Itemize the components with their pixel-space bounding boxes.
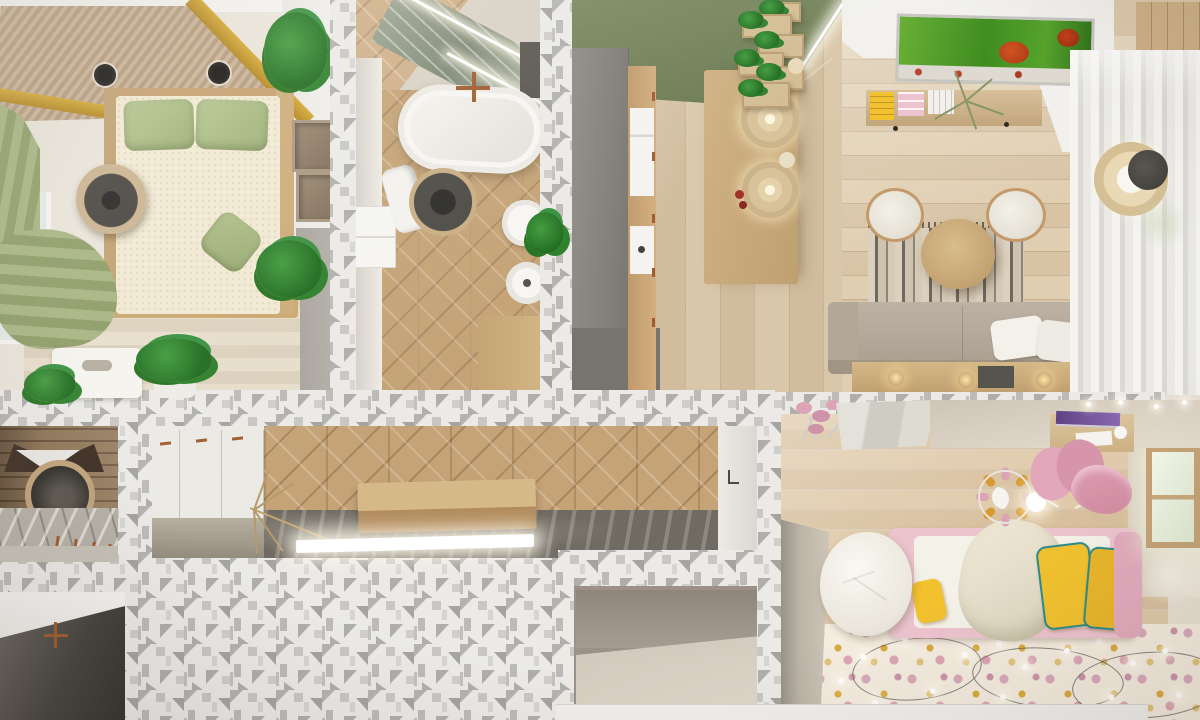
utility-faucet (54, 622, 57, 648)
room-kids (0, 0, 1200, 720)
sofa-backrest (828, 360, 1102, 374)
throw-pillow (197, 208, 266, 277)
desk-lamp (1114, 426, 1127, 439)
window-light (1140, 548, 1200, 604)
cube-shelf (292, 120, 344, 172)
bathroom-base (348, 0, 548, 400)
string-light-bulb (838, 678, 844, 684)
plant-shelf (763, 2, 801, 22)
bathtub (396, 82, 548, 176)
room-corridor (0, 0, 1200, 720)
lighting-vignette (0, 0, 1200, 720)
duvet (950, 512, 1078, 651)
red-bowl (739, 201, 747, 209)
sofa-seam (962, 306, 963, 360)
string-light-bulb (996, 640, 1002, 646)
ceiling-spotlight (1075, 106, 1080, 111)
copper-handle (196, 438, 207, 442)
green-accent-wall (558, 0, 848, 108)
string-light-wire (970, 641, 1127, 714)
plant (136, 338, 212, 382)
low-cabinet (564, 328, 660, 398)
plant (256, 240, 322, 298)
plant-shelf (758, 34, 804, 58)
copper-handle (652, 214, 655, 223)
console-item (978, 366, 1014, 388)
white-books (928, 90, 954, 114)
ceiling-soffit (1028, 0, 1114, 152)
pouf (866, 188, 924, 242)
wardrobe-top (836, 400, 938, 450)
plant-shelf (742, 82, 790, 108)
plant (738, 79, 764, 97)
green-marble-strip (371, 0, 541, 114)
tall-cabinet-column (564, 48, 629, 340)
round-rug (409, 168, 477, 236)
bedroom-slat-ceiling (0, 6, 324, 122)
pouf (986, 188, 1046, 242)
green-curtain-fold (0, 222, 122, 354)
green-pillow (195, 99, 269, 151)
bedroom-right-wall (282, 0, 348, 400)
coffee-table (921, 219, 995, 289)
ceiling-soffit (842, 0, 1110, 58)
wing-decor (4, 444, 104, 472)
green-pillow (123, 99, 195, 151)
sink-drain (523, 279, 531, 287)
carousel-pendant (978, 470, 1032, 524)
bed-mattress (116, 96, 280, 314)
storage-bench (52, 348, 142, 398)
cube-shelf (296, 172, 344, 222)
vanity-cabinet (478, 316, 546, 396)
kitchen-floor (548, 0, 842, 400)
string-light-bulb (1096, 638, 1102, 644)
overlay-objects (0, 0, 1200, 720)
kitchen-island (704, 70, 798, 284)
bed-rail (104, 88, 120, 314)
wall-shelf (866, 90, 1042, 126)
plant-shelf (738, 52, 784, 76)
string-light-bulb (1182, 400, 1187, 405)
copper-hook (55, 536, 60, 547)
room-bathroom (0, 0, 1200, 720)
cabinet-handle (728, 470, 739, 484)
sofa-pillow (1036, 319, 1092, 365)
bedroom-base (0, 0, 348, 400)
bean-bag-crease (843, 570, 876, 584)
bathroom-ceiling (348, 0, 548, 90)
window-glass (1152, 452, 1194, 542)
floral-rug (812, 624, 1200, 720)
sofa-armrest (828, 302, 858, 374)
yellow-pillow (910, 577, 948, 624)
gong-mirror (25, 460, 95, 530)
rattan-pendant-lamp (76, 164, 146, 234)
artwork-fruit (999, 41, 1030, 64)
plant-shelf (742, 14, 792, 38)
corridor-white-cabinet (718, 424, 760, 564)
oven (630, 108, 654, 196)
pink-blanket (1114, 532, 1142, 638)
bedroom-gray-wall (296, 228, 348, 398)
plant (756, 63, 782, 81)
utility-dark-floor (0, 592, 130, 720)
green-curtain (0, 104, 40, 254)
sofa-armrest (1072, 302, 1102, 374)
string-light-wire (1070, 647, 1200, 720)
marble-console (0, 508, 122, 546)
plant-pot (154, 366, 196, 398)
string-light-bulb (860, 654, 866, 660)
toilet (502, 200, 546, 246)
room-closet (0, 0, 1200, 720)
branch-decor (240, 465, 370, 555)
string-light-bulb (1064, 648, 1070, 654)
string-light-bulb (1108, 694, 1114, 700)
floor-lamp-top (1128, 150, 1168, 190)
led-strip (398, 0, 532, 63)
corridor-marble-floor (264, 510, 718, 564)
room-living (0, 0, 1200, 720)
wood-bench (357, 479, 536, 534)
ceiling-spotlight (893, 126, 898, 131)
plant (526, 212, 564, 254)
console-spotlight (958, 372, 974, 388)
sofa (828, 302, 1102, 374)
copper-hook (107, 544, 112, 555)
room-kitchen (0, 0, 1200, 720)
yellow-books (870, 92, 894, 120)
string-light-bulb (872, 700, 878, 706)
plant-shelf (760, 66, 804, 90)
rug-fringe (868, 222, 1024, 228)
botanical-artwork (895, 13, 1095, 86)
parquet-feature-wall (264, 418, 718, 514)
led-strip (447, 52, 581, 125)
red-bowl (735, 190, 744, 199)
kids-window (1146, 446, 1200, 548)
copper-hook (91, 542, 96, 553)
pendant-lamp (741, 90, 799, 148)
apartment-render (0, 0, 1200, 720)
branch-decor (938, 70, 998, 130)
sink-tap (542, 274, 556, 279)
string-light-bulb (930, 688, 936, 694)
ceiling-spotlight (208, 62, 230, 84)
artwork-plate-band (898, 64, 1090, 83)
floor-lamp (1094, 142, 1168, 216)
corridor-floor-strip (138, 518, 264, 564)
kids-desk (1050, 414, 1134, 452)
bean-bag (820, 532, 912, 636)
butterfly-chair (1064, 455, 1140, 526)
bathtub-basin (408, 94, 535, 164)
sheer-curtains (1070, 50, 1200, 400)
pendant-rod (800, 58, 833, 84)
wall-panels (352, 206, 396, 268)
string-light-bulb (962, 652, 968, 658)
closet-floor (576, 636, 760, 704)
cut-walls (0, 0, 1200, 720)
copper-hook (73, 539, 78, 550)
room-utility (0, 0, 1200, 720)
copper-handle (652, 318, 655, 327)
media-console (852, 362, 1136, 392)
corridor-base (128, 420, 762, 564)
glow-lamp (1026, 492, 1046, 512)
kitchen-base (548, 0, 842, 400)
bedroom-gold-trim (0, 86, 136, 122)
sofa-pillow (989, 315, 1046, 362)
string-light-bulb (1154, 404, 1159, 409)
copper-handle (652, 92, 655, 101)
bed-rail (276, 88, 294, 314)
purple-laptop (1056, 411, 1120, 428)
plant (734, 49, 760, 67)
string-light-bulb (1130, 660, 1136, 666)
bench-handle (82, 360, 112, 371)
yellow-pillow (1035, 541, 1099, 631)
kids-wood-floor (778, 410, 1168, 635)
desk-paper (1076, 431, 1113, 447)
kids-right-wall (1128, 412, 1200, 597)
dark-corner (520, 42, 546, 98)
butterfly-chair (1030, 440, 1106, 508)
plant (24, 368, 76, 402)
utility-faucet (44, 634, 68, 637)
string-light-bulb (1086, 402, 1091, 407)
bedroom-window (0, 192, 51, 344)
kitchen-counter (628, 66, 656, 392)
console-spotlight (888, 370, 904, 386)
entry-rustic-wall (0, 424, 124, 562)
bowl (779, 152, 795, 168)
bathroom-left-wall (348, 58, 382, 400)
copper-handle (160, 441, 171, 445)
ceiling-spotlight (1088, 97, 1093, 102)
room-entry (0, 0, 1200, 720)
ceiling-spotlight (1004, 122, 1009, 127)
rug-fringe (868, 310, 1024, 316)
string-light-wire (849, 631, 985, 706)
appliance (630, 226, 654, 274)
plant (738, 11, 764, 29)
bed-headboard (112, 88, 292, 110)
living-floor (842, 36, 1200, 400)
white-triangle-decor (16, 450, 80, 472)
ceiling-spotlight (94, 64, 116, 86)
string-light-bulb (902, 636, 908, 642)
bedroom-gold-trim (185, 0, 314, 127)
console-spotlight (1036, 372, 1052, 388)
bottom-wall-edge (556, 704, 1148, 720)
knob (638, 246, 645, 253)
pendant-lamp (742, 162, 798, 218)
towel (380, 163, 431, 236)
decor-ball (788, 58, 804, 74)
kids-bed-mattress (914, 536, 1110, 628)
string-light-bulb (1118, 400, 1123, 405)
kids-bed-frame (888, 528, 1138, 638)
bathroom-ceiling-wood (350, 0, 468, 90)
entry-floor (0, 546, 122, 566)
pink-dried-flowers (782, 396, 852, 448)
carousel-ring (978, 470, 1032, 524)
utility-walls (0, 592, 130, 720)
window-glow (1136, 200, 1190, 248)
cove-light (777, 0, 848, 104)
kids-base (775, 395, 1200, 720)
copper-handle (232, 436, 243, 440)
string-light-bulb (1022, 664, 1028, 670)
corridor-cabinets (138, 430, 264, 520)
room-bedroom (0, 0, 1200, 720)
string-light-bulb (1162, 648, 1168, 654)
copper-handle (652, 268, 655, 277)
artwork-fruit (1057, 29, 1079, 48)
copper-handle (652, 152, 655, 161)
tub-faucet (456, 86, 490, 90)
bedroom-floor (24, 285, 300, 397)
tub-faucet (472, 72, 476, 102)
bathroom-parquet-floor (366, 58, 542, 400)
closet-wall (576, 590, 760, 648)
led-light-bar (296, 534, 534, 553)
kids-top-wall (930, 400, 1200, 448)
plant (754, 31, 780, 49)
plant-pot (36, 390, 66, 402)
wall-cabinet (1136, 2, 1200, 58)
plant (264, 12, 328, 90)
kids-wardrobe-side (775, 518, 829, 720)
string-light-bulb (1176, 692, 1182, 698)
pink-notebooks (898, 92, 924, 116)
yellow-pillow (1083, 546, 1140, 632)
plant (759, 0, 785, 17)
bed-platform (102, 272, 298, 318)
moon-decor (992, 485, 1016, 509)
bedroom-top-wall (0, 0, 348, 12)
bean-bag-crease (853, 577, 887, 601)
closet-base (574, 558, 762, 710)
string-light-bulb (1000, 694, 1006, 700)
living-base (842, 0, 1200, 400)
striped-rug (868, 228, 1024, 310)
vessel-sink (506, 262, 548, 304)
